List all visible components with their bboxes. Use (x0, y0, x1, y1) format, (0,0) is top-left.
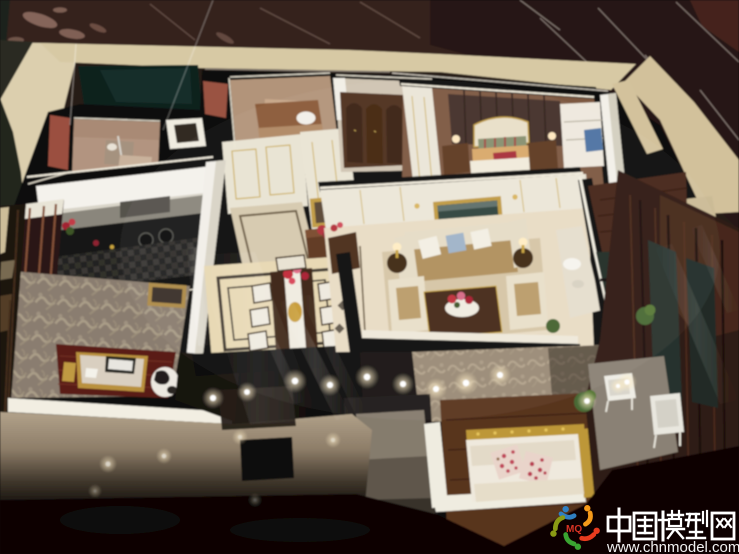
svg-text:www.chnmodel.com: www.chnmodel.com (606, 539, 739, 554)
svg-text:MQ: MQ (566, 524, 582, 535)
